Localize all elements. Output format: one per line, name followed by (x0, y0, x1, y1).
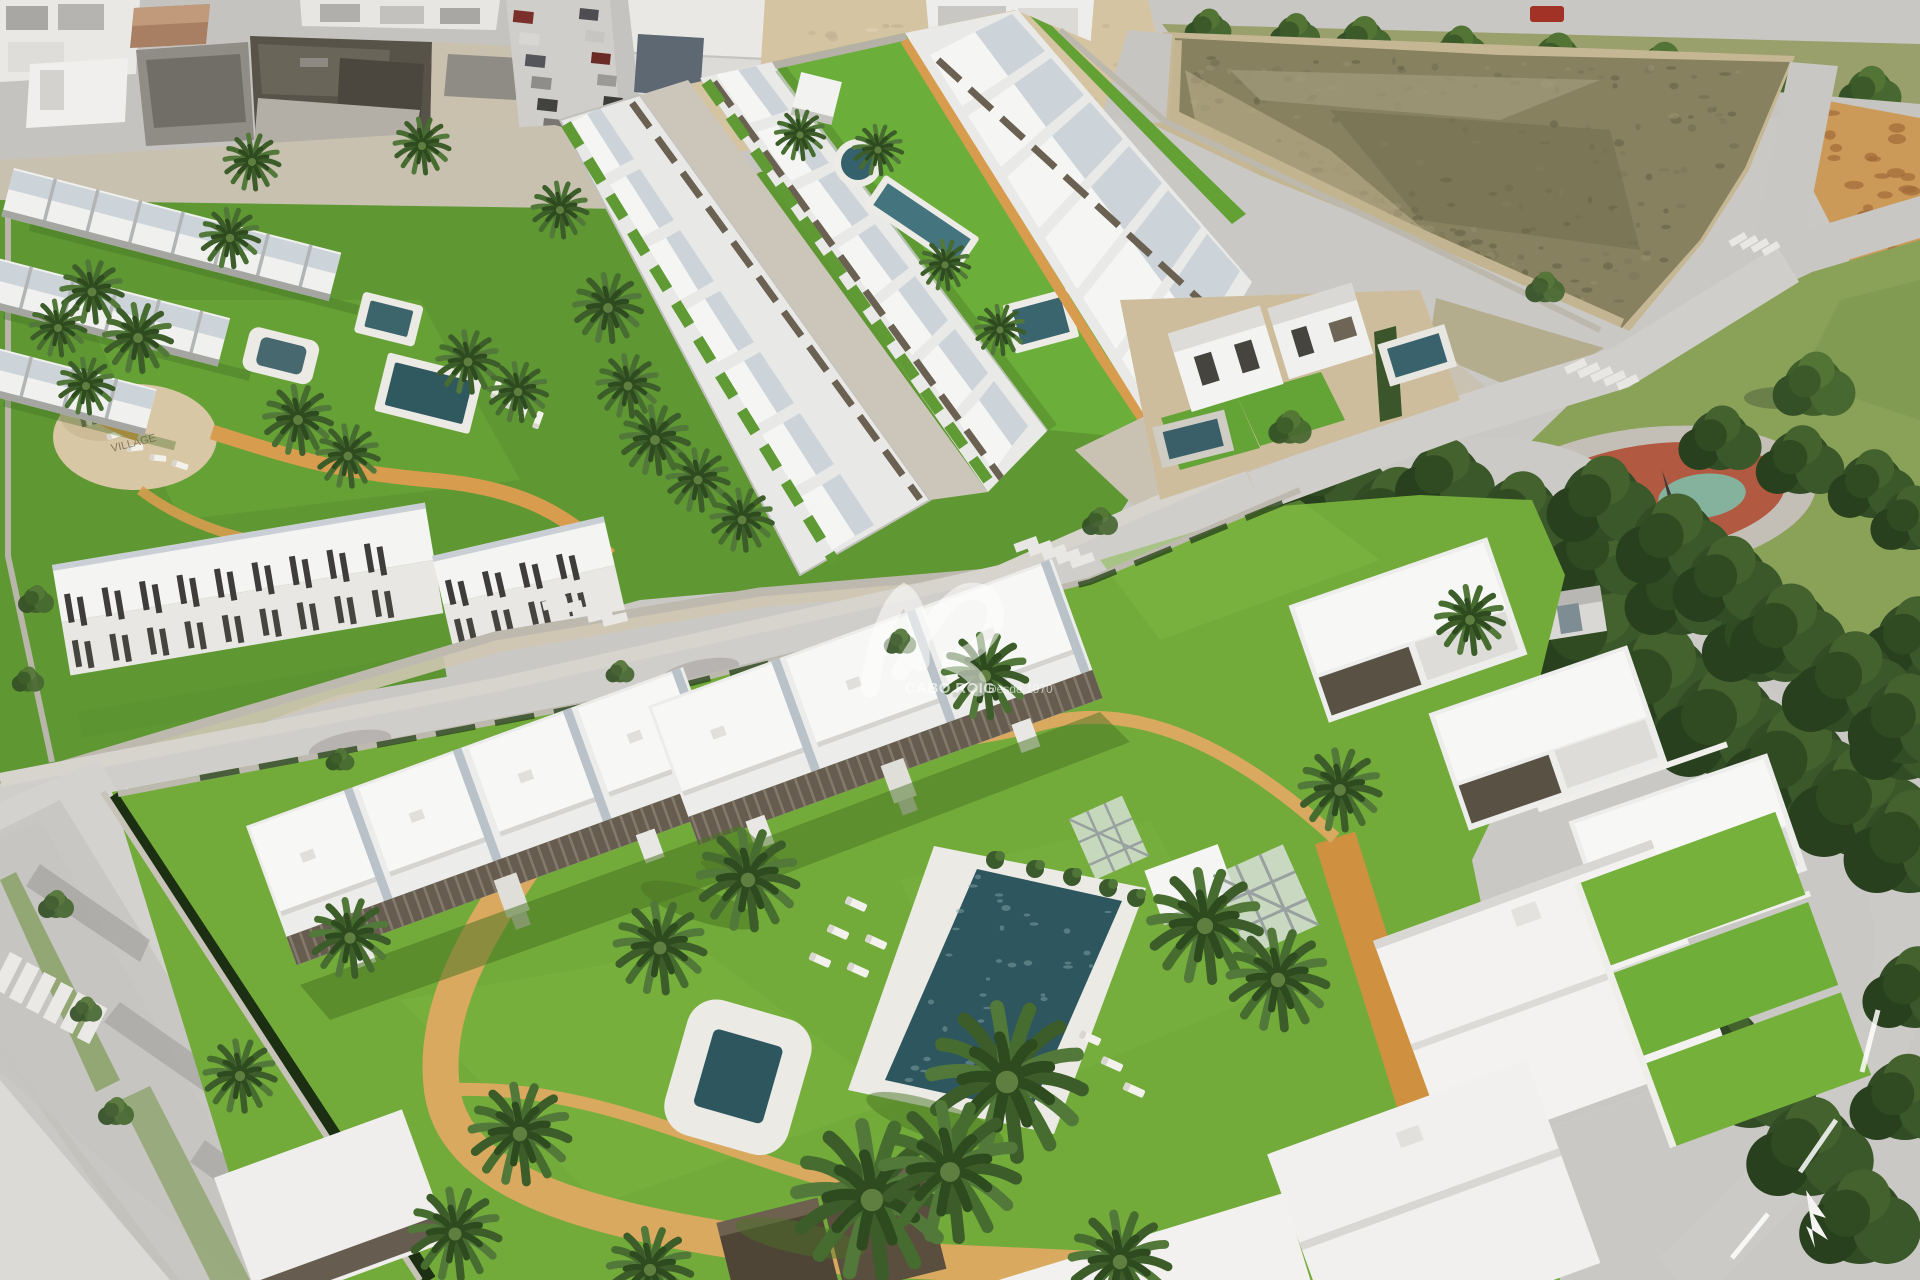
svg-text:CABO ROIG: CABO ROIG (905, 680, 995, 697)
svg-text:Desde 1970: Desde 1970 (988, 682, 1053, 696)
